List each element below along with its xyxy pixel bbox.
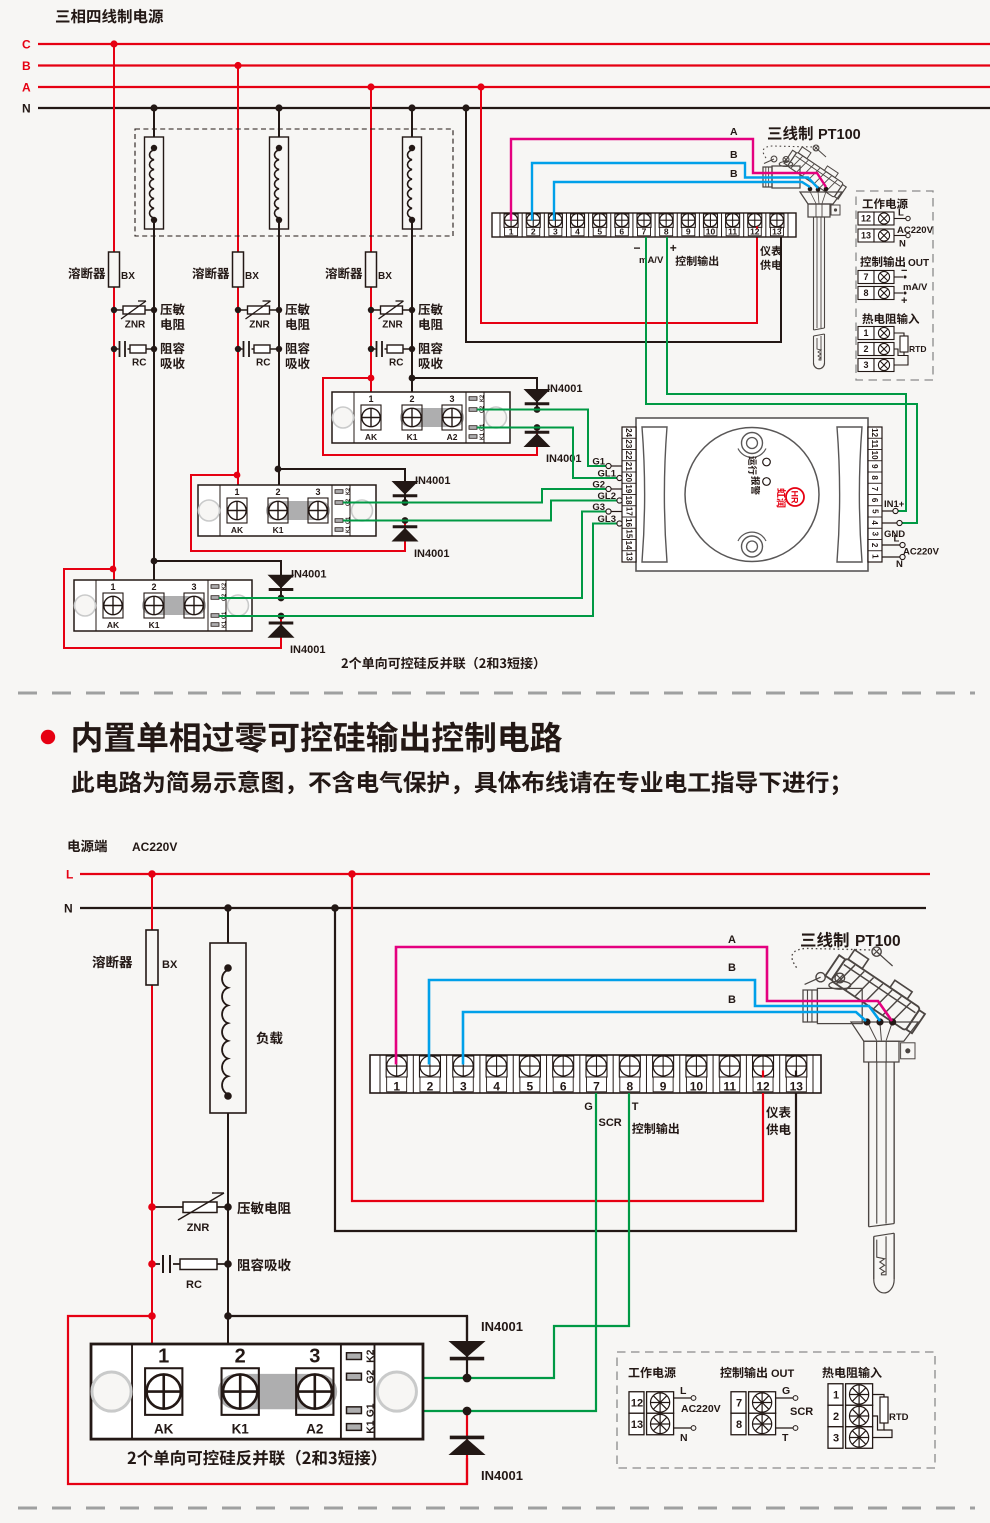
svg-text:B: B: [730, 149, 738, 161]
svg-text:11: 11: [723, 1080, 736, 1094]
svg-text:L: L: [894, 534, 900, 545]
svg-text:2: 2: [531, 227, 536, 237]
svg-text:SCR: SCR: [790, 1406, 813, 1418]
svg-text:7: 7: [593, 1080, 600, 1094]
svg-text:K2: K2: [366, 1349, 377, 1362]
svg-text:A2: A2: [447, 432, 458, 442]
svg-text:A: A: [22, 81, 31, 95]
svg-text:G: G: [782, 1385, 790, 1397]
svg-text:11: 11: [728, 227, 737, 237]
svg-text:1: 1: [110, 582, 115, 592]
svg-text:G3: G3: [592, 502, 605, 513]
svg-text:B: B: [730, 168, 738, 180]
svg-text:4: 4: [575, 227, 580, 237]
svg-text:8: 8: [736, 1419, 742, 1431]
svg-text:G2: G2: [366, 1370, 377, 1384]
svg-text:AC220V: AC220V: [897, 225, 934, 236]
svg-text:3: 3: [460, 1080, 467, 1094]
svg-text:K2: K2: [222, 583, 228, 590]
svg-text:−: −: [901, 265, 907, 277]
svg-text:18: 18: [624, 496, 633, 505]
svg-text:A2: A2: [306, 1422, 323, 1437]
svg-text:2: 2: [151, 582, 156, 592]
svg-text:AK: AK: [365, 432, 378, 442]
svg-text:12: 12: [861, 214, 871, 224]
svg-text:3: 3: [309, 1346, 320, 1368]
svg-text:N: N: [22, 102, 31, 116]
svg-text:AK: AK: [231, 525, 244, 535]
svg-text:19: 19: [624, 484, 633, 493]
svg-text:IN4001: IN4001: [290, 644, 325, 656]
svg-text:7: 7: [642, 227, 647, 237]
svg-text:5: 5: [870, 509, 879, 514]
svg-text:IN4001: IN4001: [291, 569, 326, 581]
svg-text:3: 3: [449, 394, 454, 404]
svg-text:3: 3: [833, 1432, 839, 1444]
svg-text:G1: G1: [366, 1403, 377, 1417]
svg-text:OUT: OUT: [771, 1368, 795, 1380]
svg-text:T: T: [782, 1432, 789, 1444]
svg-text:1: 1: [368, 394, 373, 404]
svg-text:mA/V: mA/V: [639, 255, 664, 266]
svg-text:5: 5: [527, 1080, 534, 1094]
svg-text:AK: AK: [154, 1422, 174, 1437]
svg-text:23: 23: [624, 439, 633, 448]
svg-text:G1: G1: [592, 457, 605, 468]
svg-text:K1: K1: [407, 432, 418, 442]
svg-text:B: B: [728, 994, 736, 1006]
svg-text:SCR: SCR: [599, 1117, 622, 1129]
svg-text:20: 20: [624, 473, 633, 482]
svg-text:K1: K1: [232, 1422, 250, 1437]
svg-text:17: 17: [624, 507, 633, 516]
svg-text:1: 1: [509, 227, 514, 237]
svg-text:K1: K1: [346, 526, 352, 533]
svg-text:11: 11: [870, 440, 879, 449]
svg-text:9: 9: [686, 227, 691, 237]
svg-text:16: 16: [624, 518, 633, 527]
svg-text:22: 22: [624, 451, 633, 460]
svg-text:8: 8: [664, 227, 669, 237]
svg-text:13: 13: [631, 1419, 643, 1431]
svg-text:OUT: OUT: [908, 258, 929, 269]
svg-text:5: 5: [597, 227, 602, 237]
svg-text:IN4001: IN4001: [415, 475, 450, 487]
svg-text:2: 2: [863, 344, 868, 354]
svg-text:IN4001: IN4001: [547, 383, 582, 395]
svg-text:AC220V: AC220V: [903, 547, 940, 558]
svg-text:9: 9: [870, 464, 879, 469]
svg-text:HR: HR: [790, 491, 800, 504]
svg-text:IN4001: IN4001: [481, 1319, 523, 1334]
svg-text:K1: K1: [149, 620, 160, 630]
svg-text:8: 8: [863, 288, 868, 298]
svg-text:2: 2: [275, 487, 280, 497]
svg-text:−: −: [633, 241, 640, 255]
svg-text:PT100: PT100: [855, 933, 901, 950]
svg-text:12: 12: [631, 1397, 643, 1409]
svg-text:K1: K1: [273, 525, 284, 535]
svg-text:RC: RC: [256, 358, 270, 369]
svg-text:13: 13: [790, 1080, 804, 1094]
svg-text:BX: BX: [378, 271, 392, 282]
svg-text:8: 8: [870, 475, 879, 480]
svg-text:RTD: RTD: [889, 1412, 909, 1423]
svg-text:10: 10: [870, 451, 879, 460]
svg-text:BX: BX: [121, 271, 135, 282]
svg-text:21: 21: [624, 462, 633, 471]
svg-text:2: 2: [409, 394, 414, 404]
svg-text:GL2: GL2: [598, 491, 616, 502]
svg-text:K2: K2: [346, 488, 352, 495]
svg-text:L: L: [680, 1385, 687, 1397]
svg-text:ZNR: ZNR: [382, 320, 403, 331]
svg-text:L: L: [66, 868, 73, 882]
svg-text:B: B: [728, 962, 736, 974]
svg-text:2: 2: [870, 543, 879, 548]
svg-text:13: 13: [861, 231, 871, 241]
svg-text:GL3: GL3: [598, 514, 616, 525]
svg-text:2: 2: [235, 1346, 246, 1368]
svg-text:10: 10: [706, 227, 716, 237]
svg-text:15: 15: [624, 529, 633, 538]
svg-text:RC: RC: [132, 358, 146, 369]
svg-text:AK: AK: [107, 620, 120, 630]
svg-text:3: 3: [870, 532, 879, 537]
svg-text:1: 1: [863, 328, 868, 338]
svg-text:ZNR: ZNR: [125, 320, 146, 331]
svg-text:B: B: [22, 59, 31, 73]
svg-text:7: 7: [863, 272, 868, 282]
svg-text:N: N: [64, 902, 73, 916]
svg-text:A: A: [728, 934, 736, 946]
svg-text:GL1: GL1: [598, 469, 617, 480]
svg-text:24: 24: [624, 428, 633, 437]
svg-text:1: 1: [158, 1346, 169, 1368]
svg-text:12: 12: [750, 227, 760, 237]
svg-text:RC: RC: [389, 358, 403, 369]
svg-text:4: 4: [493, 1080, 500, 1094]
svg-text:BX: BX: [245, 271, 259, 282]
svg-text:7: 7: [870, 487, 879, 492]
svg-text:K1: K1: [366, 1420, 377, 1433]
svg-text:12: 12: [756, 1080, 770, 1094]
svg-text:G2: G2: [592, 480, 605, 491]
svg-text:PT100: PT100: [818, 127, 861, 143]
svg-text:9: 9: [660, 1080, 667, 1094]
svg-text:ZNR: ZNR: [249, 320, 270, 331]
svg-text:RC: RC: [186, 1279, 202, 1291]
svg-text:+: +: [901, 295, 907, 307]
svg-text:4: 4: [870, 520, 879, 525]
svg-text:8: 8: [626, 1080, 633, 1094]
svg-text:6: 6: [619, 227, 624, 237]
svg-text:K1: K1: [222, 621, 228, 628]
svg-text:ZNR: ZNR: [187, 1222, 210, 1234]
svg-text:14: 14: [624, 541, 633, 550]
svg-text:C: C: [22, 38, 31, 52]
svg-text:2: 2: [427, 1080, 434, 1094]
svg-text:N: N: [899, 239, 906, 250]
svg-text:12: 12: [870, 428, 879, 437]
svg-text:1: 1: [870, 554, 879, 559]
svg-text:A: A: [730, 126, 738, 138]
svg-text:mA/V: mA/V: [903, 282, 928, 293]
svg-text:G: G: [584, 1101, 593, 1113]
svg-text:1: 1: [833, 1389, 839, 1401]
svg-text:2: 2: [833, 1411, 839, 1423]
svg-text:3: 3: [553, 227, 558, 237]
svg-text:IN4001: IN4001: [481, 1468, 523, 1483]
svg-text:L: L: [898, 208, 904, 219]
svg-text:+: +: [670, 241, 677, 255]
svg-text:N: N: [680, 1432, 688, 1444]
svg-text:13: 13: [624, 552, 633, 561]
svg-text:IN4001: IN4001: [546, 453, 581, 465]
svg-text:K2: K2: [480, 395, 486, 402]
svg-text:T: T: [632, 1101, 639, 1113]
svg-text:RTD: RTD: [909, 344, 926, 354]
svg-text:6: 6: [870, 498, 879, 503]
svg-text:3: 3: [863, 360, 868, 370]
svg-text:K1: K1: [480, 433, 486, 440]
svg-text:10: 10: [690, 1080, 704, 1094]
svg-text:BX: BX: [162, 959, 178, 971]
svg-text:7: 7: [736, 1397, 742, 1409]
svg-text:AC220V: AC220V: [132, 840, 177, 854]
svg-text:IN4001: IN4001: [414, 548, 449, 560]
svg-text:3: 3: [191, 582, 196, 592]
svg-text:IN1+: IN1+: [884, 499, 905, 510]
svg-text:1: 1: [234, 487, 239, 497]
svg-text:AC220V: AC220V: [681, 1403, 721, 1415]
svg-text:1: 1: [393, 1080, 400, 1094]
svg-text:3: 3: [315, 487, 320, 497]
svg-text:N: N: [896, 559, 903, 570]
svg-text:6: 6: [560, 1080, 567, 1094]
